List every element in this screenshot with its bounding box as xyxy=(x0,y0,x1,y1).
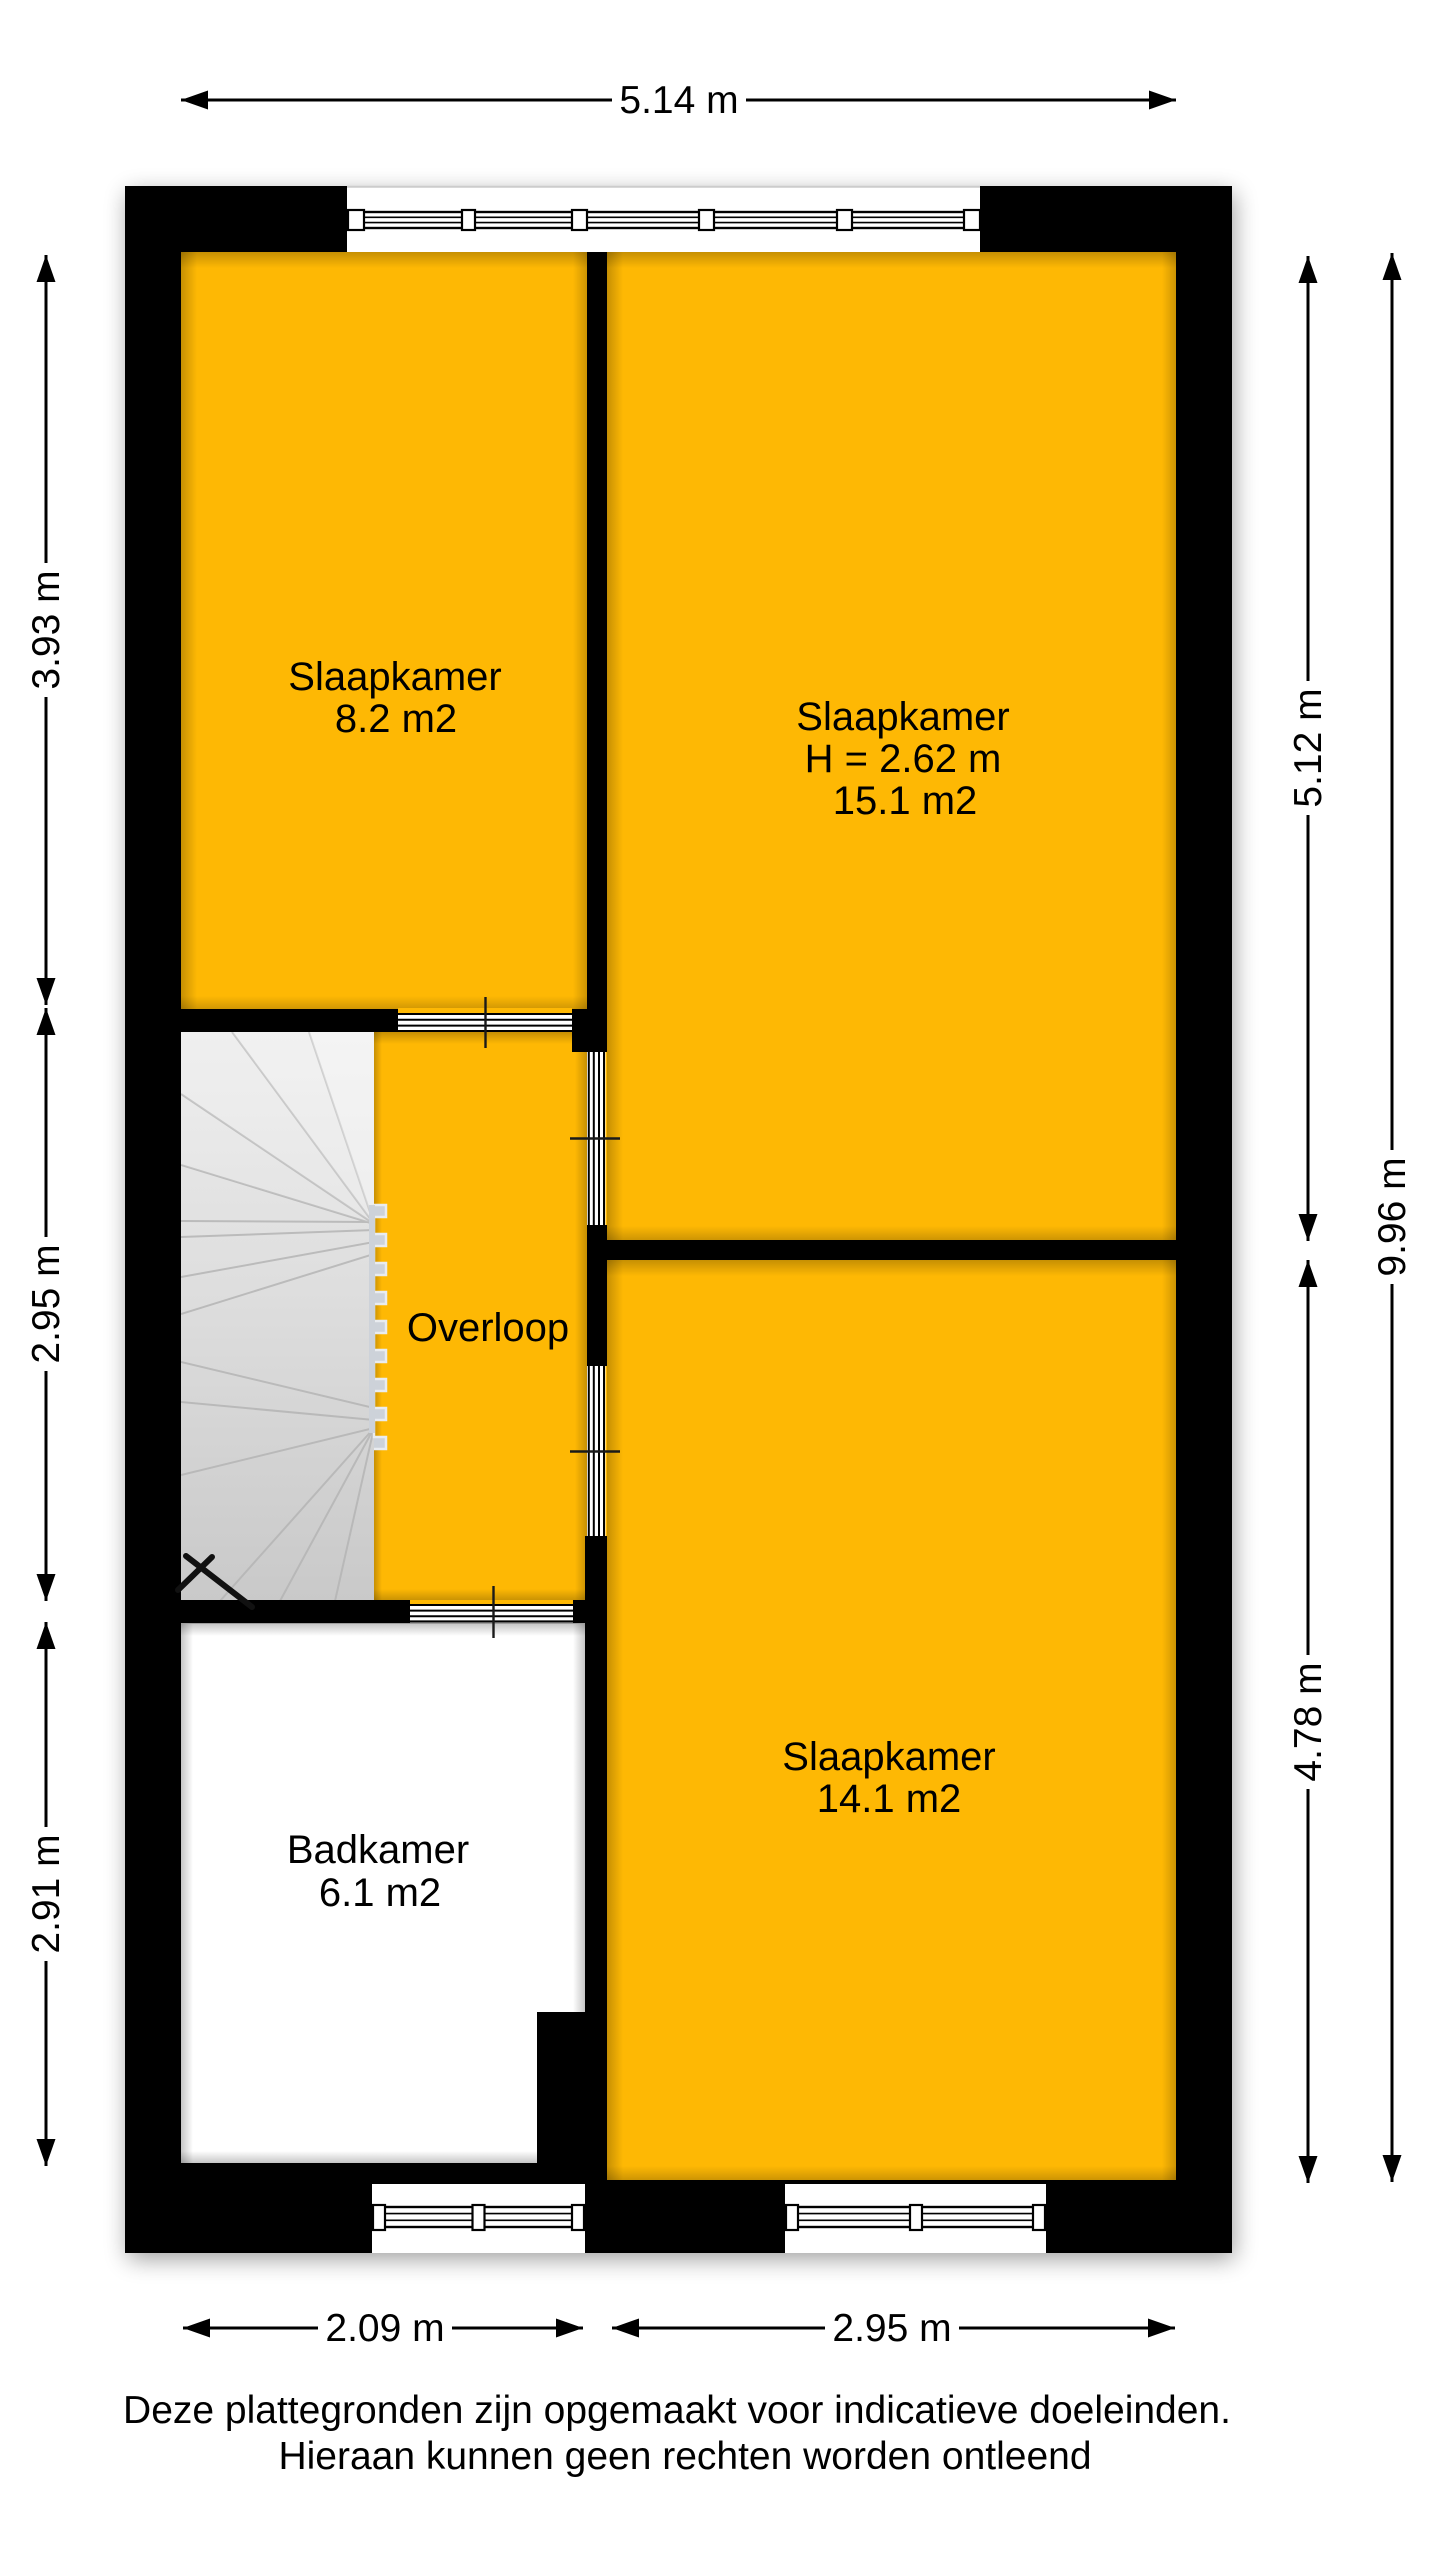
svg-text:8.2 m2: 8.2 m2 xyxy=(335,697,457,741)
svg-text:4.78 m: 4.78 m xyxy=(1287,1662,1330,1781)
svg-text:5.12 m: 5.12 m xyxy=(1287,688,1330,807)
svg-text:2.09 m: 2.09 m xyxy=(325,2307,444,2350)
svg-text:Overloop: Overloop xyxy=(407,1306,569,1350)
svg-text:Badkamer: Badkamer xyxy=(287,1828,469,1872)
svg-text:Slaapkamer: Slaapkamer xyxy=(288,655,501,699)
svg-text:Deze plattegronden zijn opgema: Deze plattegronden zijn opgemaakt voor i… xyxy=(123,2389,1231,2432)
svg-text:Slaapkamer: Slaapkamer xyxy=(796,695,1009,739)
svg-text:H = 2.62 m: H = 2.62 m xyxy=(805,737,1002,781)
svg-text:2.95 m: 2.95 m xyxy=(25,1244,68,1363)
svg-text:14.1 m2: 14.1 m2 xyxy=(817,1777,962,1821)
svg-text:2.91 m: 2.91 m xyxy=(25,1834,68,1953)
svg-text:6.1 m2: 6.1 m2 xyxy=(319,1871,441,1915)
svg-text:Hieraan kunnen geen rechten wo: Hieraan kunnen geen rechten worden ontle… xyxy=(278,2435,1091,2478)
svg-text:15.1 m2: 15.1 m2 xyxy=(833,779,978,823)
svg-text:9.96 m: 9.96 m xyxy=(1371,1157,1414,1276)
svg-text:3.93 m: 3.93 m xyxy=(25,570,68,689)
svg-text:5.14 m: 5.14 m xyxy=(619,79,738,122)
svg-text:Slaapkamer: Slaapkamer xyxy=(782,1735,995,1779)
svg-text:2.95 m: 2.95 m xyxy=(832,2307,951,2350)
